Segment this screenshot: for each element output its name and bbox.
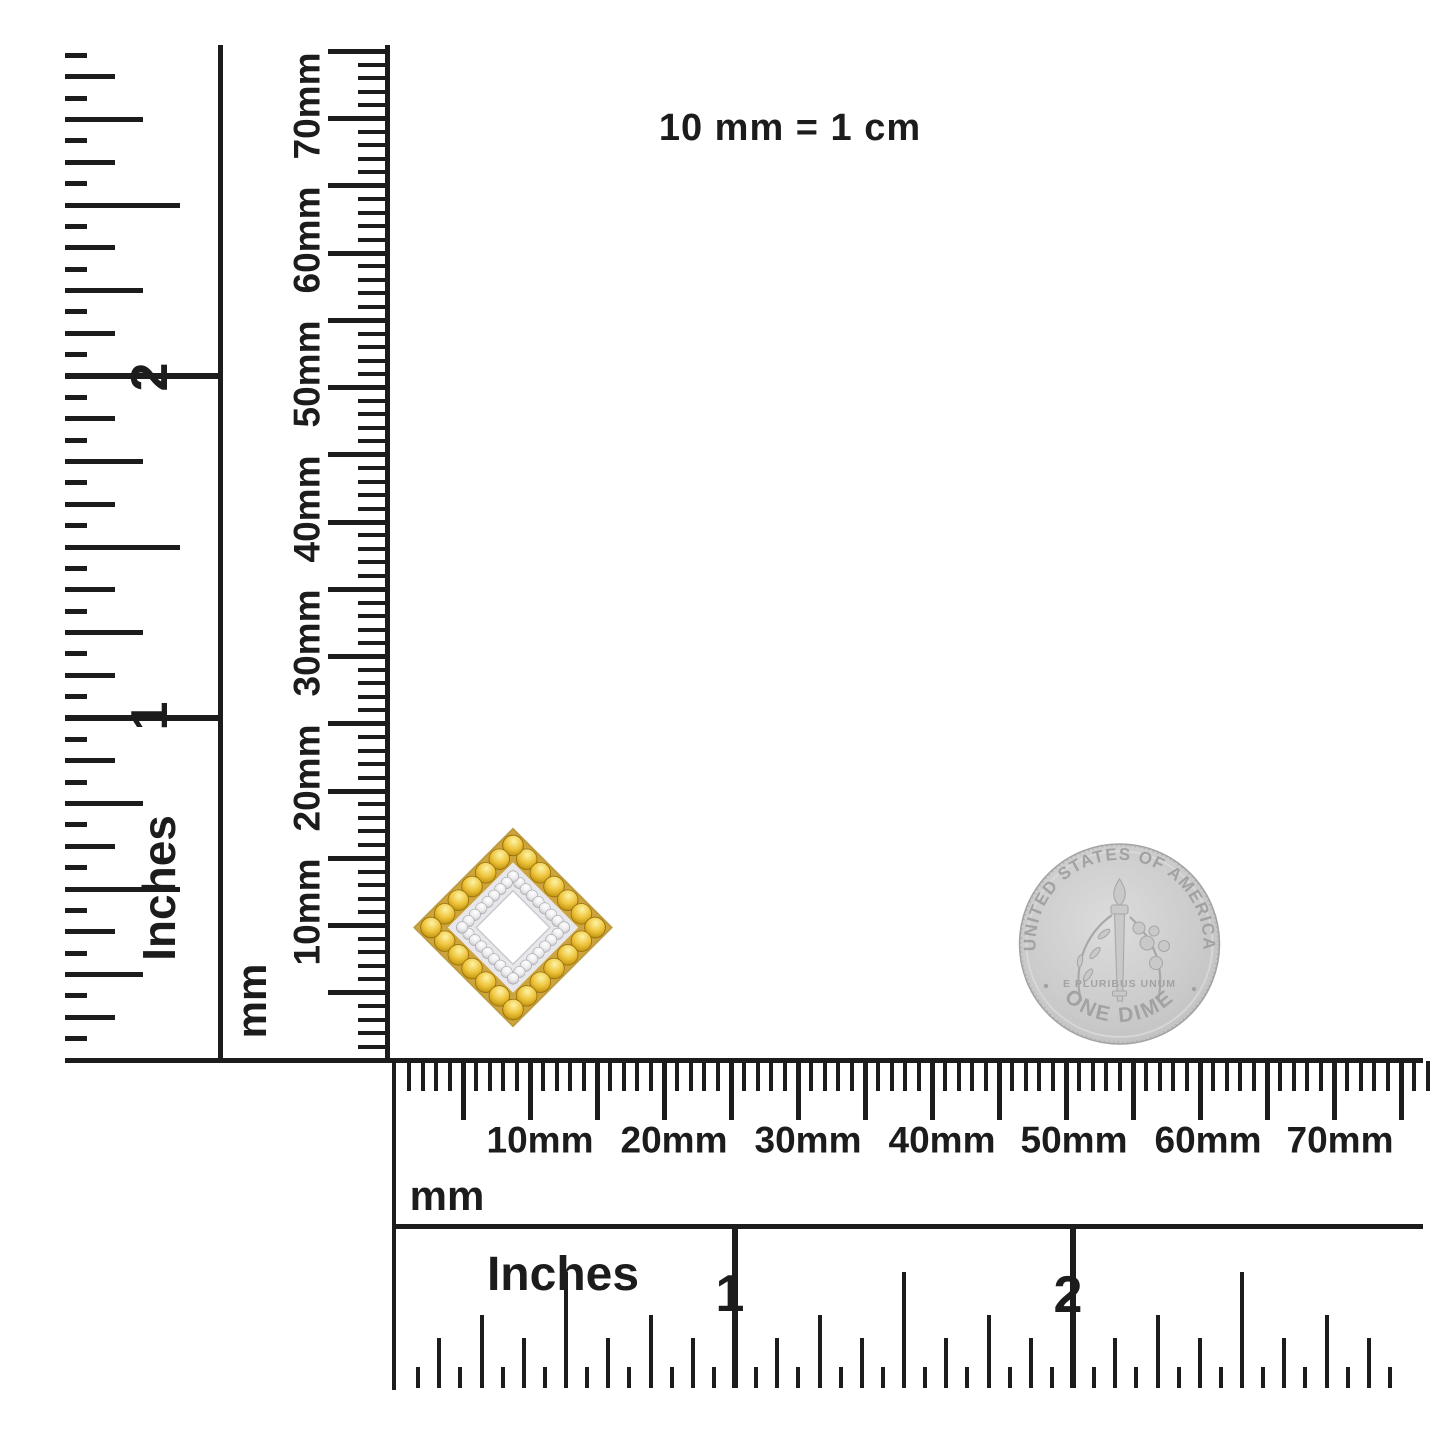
ruler-tick [358, 345, 390, 349]
coin-motto-text: E PLURIBUS UNUM [1063, 978, 1176, 990]
ruler-tick [65, 245, 115, 250]
ruler-tick [582, 1061, 586, 1091]
ruler-tick [358, 157, 390, 161]
ruler-tick [903, 1061, 907, 1091]
ruler-tick [863, 1061, 868, 1120]
ruler-tick [1064, 1061, 1069, 1120]
ruler-tick [358, 883, 390, 887]
ruler-tick [358, 735, 390, 739]
ruler-tick [358, 372, 390, 376]
ruler-tick [358, 937, 390, 941]
ruler-tick [635, 1061, 639, 1091]
oak-cluster-icon [1133, 922, 1145, 934]
ruler-tick [65, 331, 115, 336]
ruler-tick [987, 1315, 991, 1388]
ruler-tick [662, 1061, 667, 1120]
ruler-tick [358, 547, 390, 551]
ruler-tick [358, 278, 390, 282]
left-mm-unit-label: mm [231, 964, 273, 1039]
ruler-tick [943, 1061, 947, 1091]
ruler-tick [65, 673, 115, 678]
ruler-tick [1091, 1061, 1095, 1091]
ruler-tick [783, 1061, 787, 1091]
ruler-tick [1051, 1061, 1055, 1091]
ruler-tick [65, 1036, 87, 1041]
ruler-tick [65, 609, 87, 614]
ruler-tick [670, 1367, 674, 1388]
ruler-tick [606, 1338, 610, 1388]
ruler-tick [1156, 1315, 1160, 1388]
ruler-tick [328, 721, 390, 726]
bottom-mm-label-60: 60mm [1155, 1122, 1262, 1159]
ruler-tick [328, 385, 390, 390]
ruler-tick [328, 183, 390, 188]
ruler-tick [358, 1031, 390, 1035]
ruler-tick [1412, 1061, 1416, 1091]
ruler-tick [358, 574, 390, 578]
ruler-tick [1346, 1367, 1350, 1388]
ruler-tick [1219, 1367, 1223, 1388]
dime-coin-image: UNITED STATES OF AMERICA ONE DIME E PLUR… [1018, 843, 1221, 1045]
ruler-tick [358, 708, 390, 712]
ruler-tick [358, 412, 390, 416]
oak-cluster-icon [1149, 926, 1159, 936]
bottom-mm-label-30: 30mm [755, 1122, 862, 1159]
ruler-tick [1198, 1061, 1203, 1120]
scale-note: 10 mm = 1 cm [659, 109, 921, 147]
scale-photo-stage: 10 mm = 1 cm 1 2 Inches mm 10mm 20mm 30m… [0, 0, 1445, 1445]
ruler-tick [65, 630, 143, 635]
ruler-tick [742, 1061, 746, 1091]
ruler-tick [358, 695, 390, 699]
ruler-tick [997, 1061, 1002, 1120]
ruler-tick [1118, 1061, 1122, 1091]
ruler-tick [421, 1061, 425, 1091]
ruler-tick [890, 1061, 894, 1091]
ruler-tick [1388, 1367, 1392, 1388]
ruler-tick [65, 737, 87, 742]
ruler-tick [1077, 1061, 1081, 1091]
ruler-tick [358, 560, 390, 564]
ruler-tick [437, 1338, 441, 1388]
ruler-tick [689, 1061, 693, 1091]
ruler-tick [876, 1061, 880, 1091]
ruler-tick [1134, 1367, 1138, 1388]
ruler-tick [1177, 1367, 1181, 1388]
ruler-tick [358, 1018, 390, 1022]
ruler-tick [65, 138, 87, 143]
ruler-tick [358, 143, 390, 147]
ruler-tick [1070, 1227, 1076, 1388]
ruler-tick [358, 601, 390, 605]
ruler-tick [328, 251, 390, 256]
ruler-tick [1037, 1061, 1041, 1091]
ruler-tick [860, 1338, 864, 1388]
ruler-tick [65, 373, 222, 379]
ruler-tick [65, 694, 87, 699]
ruler-tick [358, 829, 390, 833]
ruler-tick [358, 76, 390, 80]
ruler-tick [358, 507, 390, 511]
ruler-tick [358, 305, 390, 309]
ruler-tick [515, 1061, 519, 1091]
ruler-tick [358, 130, 390, 134]
ruler-tick [328, 990, 390, 995]
ruler-tick [65, 117, 143, 122]
ruler-tick [675, 1061, 679, 1091]
ruler-tick [358, 977, 390, 981]
ruler-tick [358, 897, 390, 901]
ruler-tick [65, 780, 87, 785]
ruler-tick [358, 964, 390, 968]
ruler-tick [1050, 1367, 1054, 1388]
ruler-tick [902, 1272, 906, 1388]
ruler-tick [881, 1367, 885, 1388]
ruler-tick [358, 224, 390, 228]
ruler-tick [65, 951, 87, 956]
ruler-tick [1131, 1061, 1136, 1120]
ruler-tick [850, 1061, 854, 1091]
ruler-tick [65, 459, 143, 464]
ruler-tick [65, 801, 143, 806]
ruler-tick [65, 352, 87, 357]
ruler-tick [65, 523, 87, 528]
ruler-tick [649, 1315, 653, 1388]
ruler-tick [1225, 1061, 1229, 1091]
ruler-tick [358, 776, 390, 780]
ruler-tick [1198, 1338, 1202, 1388]
ruler-tick [809, 1061, 813, 1091]
ruler-tick [1292, 1061, 1296, 1091]
ruler-tick [1345, 1061, 1349, 1091]
ruler-tick [328, 654, 390, 659]
ruler-tick [358, 614, 390, 618]
left-mm-label-60: 60mm [289, 187, 326, 294]
ruler-tick [528, 1061, 533, 1120]
ruler-tick [796, 1367, 800, 1388]
ruler-tick [65, 993, 87, 998]
ruler-tick [358, 426, 390, 430]
ruler-tick [930, 1061, 935, 1120]
ruler-tick [65, 587, 115, 592]
ruler-tick [1282, 1338, 1286, 1388]
ruler-tick [1024, 1061, 1028, 1091]
ruler-tick [358, 211, 390, 215]
ruler-tick [358, 870, 390, 874]
coin-left-dot [1044, 984, 1048, 988]
ruler-tick [775, 1338, 779, 1388]
ruler-tick [732, 1227, 738, 1388]
ruler-tick [1211, 1061, 1215, 1091]
ruler-tick [541, 1061, 545, 1091]
ruler-tick [501, 1061, 505, 1091]
ruler-tick [65, 715, 222, 721]
ruler-tick [358, 291, 390, 295]
ruler-tick [328, 856, 390, 861]
ruler-tick [754, 1367, 758, 1388]
ruler-tick [756, 1061, 760, 1091]
earring-rotated-frame [414, 829, 612, 1027]
ruler-tick [970, 1061, 974, 1091]
ruler-tick [358, 170, 390, 174]
ruler-tick [1426, 1061, 1430, 1091]
ruler-tick [1008, 1367, 1012, 1388]
ruler-tick [65, 96, 87, 101]
ruler-tick [407, 1061, 411, 1091]
ruler-tick [957, 1061, 961, 1091]
ruler-tick [65, 929, 115, 934]
ruler-tick [543, 1367, 547, 1388]
bottom-mm-inch-divider-line [392, 1224, 1423, 1229]
ruler-tick [65, 267, 87, 272]
ruler-tick [818, 1315, 822, 1388]
left-mm-label-30: 30mm [289, 590, 326, 697]
ruler-tick [358, 439, 390, 443]
ruler-tick [1332, 1061, 1337, 1120]
ruler-tick [65, 865, 87, 870]
ruler-tick [501, 1367, 505, 1388]
ruler-tick [328, 318, 390, 323]
oak-cluster-icon [1140, 936, 1154, 950]
ruler-tick [65, 844, 115, 849]
ruler-tick [1265, 1061, 1270, 1120]
ruler-tick [595, 1061, 600, 1120]
bottom-mm-unit-label: mm [410, 1175, 485, 1217]
ruler-tick [358, 493, 390, 497]
ruler-tick [712, 1367, 716, 1388]
ruler-tick [358, 103, 390, 107]
bottom-mm-label-10: 10mm [487, 1122, 594, 1159]
ruler-tick [65, 416, 115, 421]
bottom-mm-label-40: 40mm [889, 1122, 996, 1159]
ruler-tick [328, 789, 390, 794]
bottom-inch-number-2: 2 [1054, 1269, 1083, 1321]
left-mm-label-20: 20mm [289, 725, 326, 832]
ruler-tick [458, 1367, 462, 1388]
oak-cluster-icon [1159, 941, 1170, 952]
ruler-tick [358, 762, 390, 766]
ruler-tick [358, 359, 390, 363]
ruler-tick [568, 1061, 572, 1091]
ruler-tick [1367, 1338, 1371, 1388]
ruler-tick [328, 49, 390, 54]
ruler-tick [1399, 1061, 1404, 1120]
ruler-tick [65, 53, 87, 58]
ruler-tick [358, 1045, 390, 1049]
ruler-tick [65, 224, 87, 229]
ruler-tick [522, 1338, 526, 1388]
ruler-tick [358, 628, 390, 632]
bottom-mm-label-50: 50mm [1021, 1122, 1128, 1159]
ruler-tick [65, 181, 87, 186]
ruler-tick [358, 197, 390, 201]
ruler-tick [65, 822, 87, 827]
ruler-tick [358, 681, 390, 685]
ruler-tick [65, 908, 87, 913]
ruler-tick [917, 1061, 921, 1091]
ruler-tick [649, 1061, 653, 1091]
ruler-tick [1238, 1061, 1242, 1091]
ruler-tick [358, 238, 390, 242]
ruler-tick [358, 641, 390, 645]
ruler-tick [839, 1367, 843, 1388]
ruler-tick [358, 399, 390, 403]
ruler-tick [65, 758, 115, 763]
ruler-tick [1144, 1061, 1148, 1091]
ruler-tick [65, 309, 87, 314]
oak-cluster-icon [1150, 957, 1163, 970]
ruler-tick [65, 160, 115, 165]
ruler-tick [1359, 1061, 1363, 1091]
left-mm-label-10: 10mm [289, 859, 326, 966]
ruler-tick [944, 1338, 948, 1388]
ruler-tick [1113, 1338, 1117, 1388]
ruler-tick [555, 1061, 559, 1091]
torch-band-icon [1113, 991, 1127, 996]
ruler-tick [65, 887, 180, 892]
ruler-tick [1303, 1367, 1307, 1388]
ruler-tick [358, 533, 390, 537]
ruler-tick [488, 1061, 492, 1091]
ruler-tick [358, 910, 390, 914]
ruler-tick [358, 466, 390, 470]
left-inch-mm-divider-line [218, 45, 223, 1061]
ruler-tick [448, 1061, 452, 1091]
ruler-tick [65, 502, 115, 507]
ruler-tick [1104, 1061, 1108, 1091]
ruler-tick [358, 950, 390, 954]
ruler-tick [1325, 1315, 1329, 1388]
ruler-tick [1261, 1367, 1265, 1388]
ruler-tick [1372, 1061, 1376, 1091]
ruler-tick [328, 587, 390, 592]
ruler-tick [65, 395, 87, 400]
left-mm-label-50: 50mm [289, 321, 326, 428]
ruler-tick [474, 1061, 478, 1091]
ruler-tick [965, 1367, 969, 1388]
ruler-tick [416, 1367, 420, 1388]
ruler-tick [65, 566, 87, 571]
ruler-tick [358, 264, 390, 268]
ruler-tick [1092, 1367, 1096, 1388]
ruler-tick [358, 90, 390, 94]
ruler-tick [608, 1061, 612, 1091]
ruler-tick [358, 802, 390, 806]
ruler-tick [328, 923, 390, 928]
ruler-tick [328, 452, 390, 457]
ruler-tick [1278, 1061, 1282, 1091]
ruler-tick [358, 480, 390, 484]
ruler-tick [358, 816, 390, 820]
ruler-tick [1240, 1272, 1244, 1388]
ruler-tick [65, 480, 87, 485]
bottom-inch-unit-label: Inches [487, 1251, 639, 1299]
ruler-tick [358, 749, 390, 753]
ruler-tick [1319, 1061, 1323, 1091]
ruler-tick [564, 1272, 568, 1388]
ruler-tick [328, 116, 390, 121]
ruler-tick [65, 74, 115, 79]
ruler-tick [729, 1061, 734, 1120]
ruler-tick [1158, 1061, 1162, 1091]
ruler-tick [65, 1015, 115, 1020]
left-mm-label-70: 70mm [289, 53, 326, 160]
torch-cup-icon [1111, 905, 1128, 914]
ruler-tick [434, 1061, 438, 1091]
ruler-tick [1029, 1338, 1033, 1388]
ruler-tick [65, 438, 87, 443]
bottom-ruler-left-edge-line [392, 1058, 396, 1390]
ruler-tick [461, 1061, 466, 1120]
ruler-tick [1386, 1061, 1390, 1091]
earring-image [408, 820, 618, 1035]
ruler-tick [480, 1315, 484, 1388]
ruler-tick [796, 1061, 801, 1120]
coin-right-dot [1192, 987, 1196, 991]
ruler-tick [1010, 1061, 1014, 1091]
ruler-tick [358, 332, 390, 336]
ruler-tick [836, 1061, 840, 1091]
ruler-tick [358, 63, 390, 67]
ruler-tick [358, 1004, 390, 1008]
ruler-tick [622, 1061, 626, 1091]
ruler-tick [358, 668, 390, 672]
ruler-tick [65, 203, 180, 208]
ruler-tick [358, 843, 390, 847]
bottom-inch-number-1: 1 [716, 1268, 745, 1320]
ruler-tick [702, 1061, 706, 1091]
left-mm-label-40: 40mm [289, 456, 326, 563]
ruler-tick [1305, 1061, 1309, 1091]
ruler-tick [627, 1367, 631, 1388]
ruler-tick [923, 1367, 927, 1388]
ruler-tick [1252, 1061, 1256, 1091]
bottom-mm-label-20: 20mm [621, 1122, 728, 1159]
ruler-tick [984, 1061, 988, 1091]
ruler-tick [328, 520, 390, 525]
ruler-tick [65, 972, 143, 977]
ruler-tick [1171, 1061, 1175, 1091]
ruler-tick [769, 1061, 773, 1091]
ruler-tick [691, 1338, 695, 1388]
ruler-tick [585, 1367, 589, 1388]
bottom-mm-label-70: 70mm [1287, 1122, 1394, 1159]
ruler-tick [65, 288, 143, 293]
ruler-tick [65, 545, 180, 550]
ruler-tick [65, 651, 87, 656]
ruler-tick [1185, 1061, 1189, 1091]
ruler-tick [823, 1061, 827, 1091]
ruler-tick [716, 1061, 720, 1091]
